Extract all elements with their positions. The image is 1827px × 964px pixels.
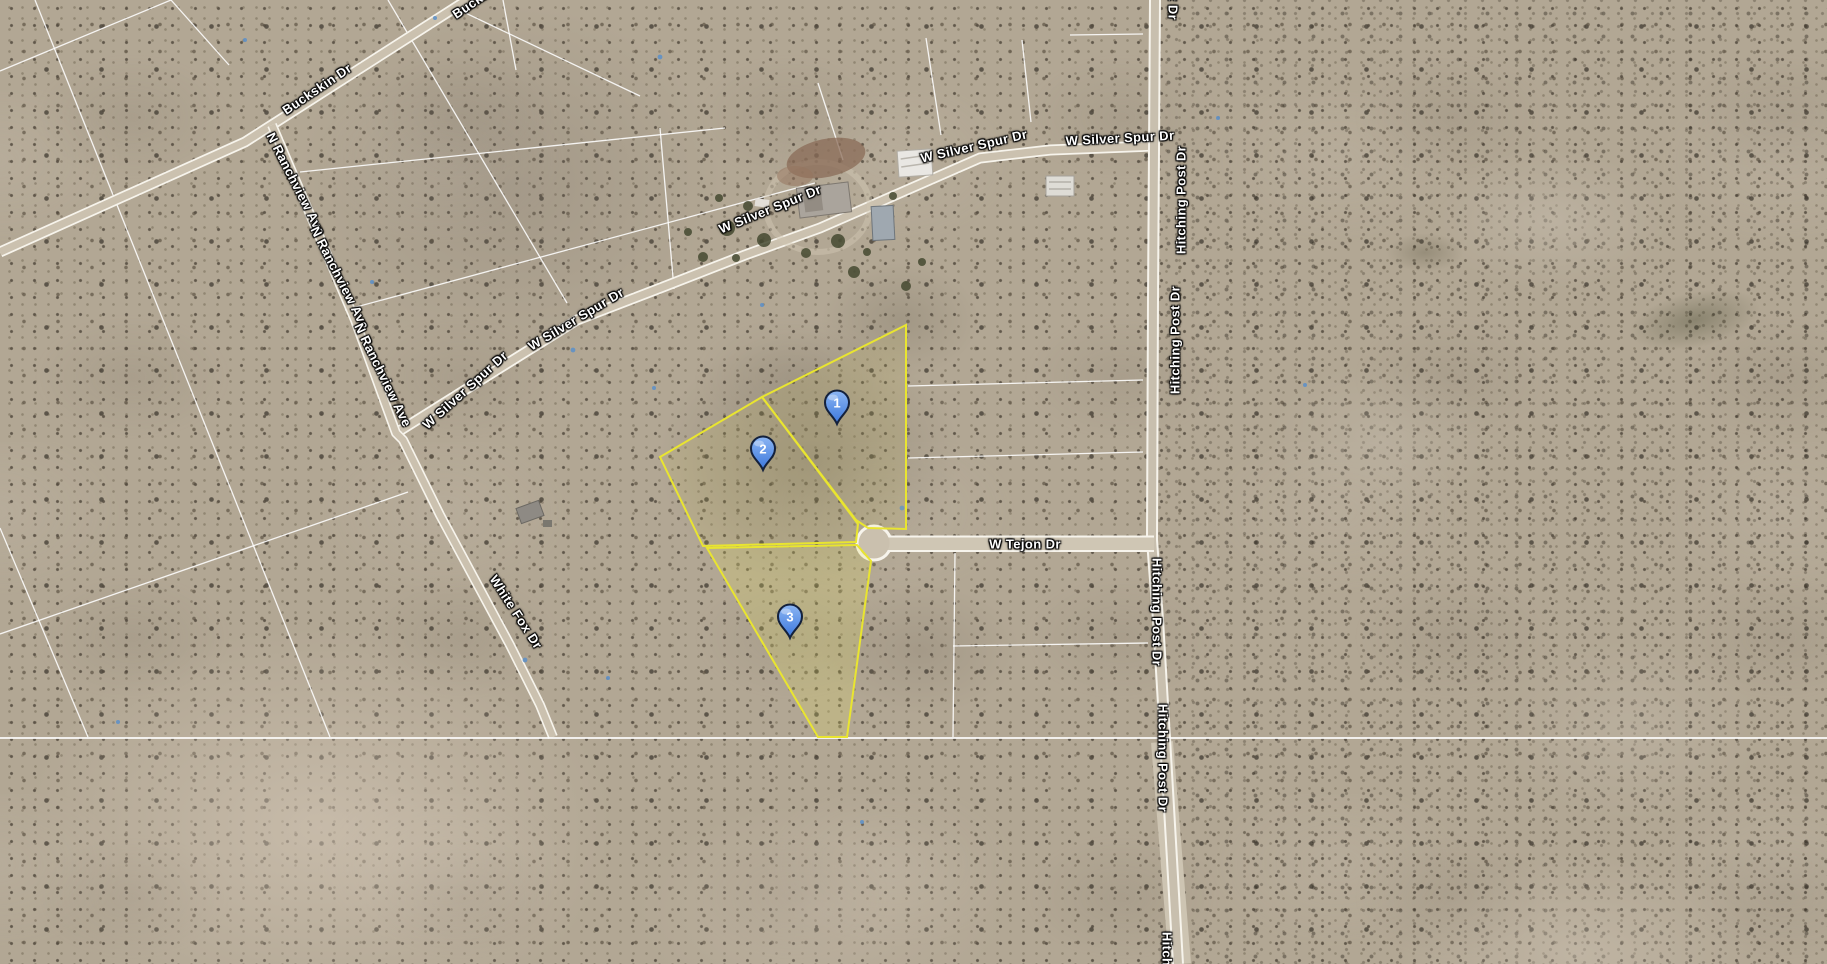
shed-gray: [516, 500, 544, 523]
tint-southwest-light: [0, 520, 730, 964]
trees: [684, 192, 926, 291]
tint-east-dark-blob: [1594, 261, 1796, 379]
tint-fan-terrain-ne: [790, 240, 1010, 400]
tint-east-wash-1: [1380, 120, 1720, 320]
dirt-patch-2: [777, 166, 813, 186]
trailer-white: [755, 198, 770, 208]
tint-east-wash-2: [1220, 330, 1540, 550]
parcel-3: [707, 545, 871, 737]
road-label: W Silver Spur Dr: [717, 182, 824, 237]
road-label: Buckskin Dr: [280, 60, 355, 117]
tint-south-tejon: [780, 560, 1060, 740]
tint-south-mid-light: [560, 760, 1080, 964]
pin-number: 3: [786, 610, 793, 625]
map-pin-3[interactable]: 3: [778, 605, 802, 639]
terrain-speckle: [0, 0, 1827, 964]
road-label: W Silver Spur Dr: [1065, 128, 1175, 149]
outbuilding-white-2: [1046, 176, 1074, 196]
house-main: [796, 182, 851, 218]
map-pins: 123: [751, 391, 849, 639]
parcel-2: [660, 397, 858, 546]
tint-fan-terrain: [600, 280, 1020, 640]
parcel-overlays: [660, 325, 906, 737]
driveway-loop: [766, 162, 870, 252]
tint-southeast-light: [1330, 800, 1827, 964]
road-label: Hitching Post Dr: [1150, 558, 1165, 666]
pin-number: 2: [759, 442, 766, 457]
road-label: White Fox Dr: [487, 572, 546, 651]
parcel-lines-layer: [0, 0, 1148, 737]
map-vector-layer: 123: [0, 0, 1827, 964]
terrain-mottle: [0, 0, 1827, 964]
outbuilding-gray: [871, 205, 895, 240]
road-label: Hitching Post Dr: [1160, 932, 1175, 964]
road-label: N Ranchview Ave: [308, 224, 373, 332]
road-label: Hitching Post Dr: [1174, 146, 1189, 254]
road-label: W Tejon Dr: [989, 537, 1061, 552]
road-labels: Buckskin DrBuckskin DrN Ranchview AveN R…: [0, 0, 1827, 964]
road-label: W Silver Spur Dr: [525, 285, 626, 354]
roads-layer: [0, 0, 1827, 964]
road-label: Hitching Post Dr: [1168, 286, 1183, 394]
map-pin-2[interactable]: 2: [751, 437, 775, 471]
tint-east-dark-blob-2: [1370, 225, 1480, 280]
road-label: Hitching Post Dr: [1156, 704, 1171, 812]
tint-east-wash-3: [1440, 600, 1820, 860]
road-label: N Ranchview Ave: [264, 130, 329, 238]
buildings: [116, 16, 1307, 824]
pin-number: 1: [833, 396, 840, 411]
satellite-map[interactable]: 123 Buckskin DrBuckskin DrN Ranchview Av…: [0, 0, 1827, 964]
road-label: Hitching Post Dr: [1166, 0, 1181, 20]
road-label: W Silver Spur Dr: [419, 348, 510, 432]
outbuilding-white: [897, 149, 933, 177]
cul-de-sac: [859, 528, 890, 559]
road-label: N Ranchview Ave: [351, 321, 414, 430]
tint-north-block: [250, 0, 770, 440]
road-label: W Silver Spur Dr: [919, 126, 1029, 165]
map-pin-1[interactable]: 1: [825, 391, 849, 425]
dirt-patch: [783, 131, 869, 185]
terrain-speckle-east: [1150, 0, 1827, 964]
road-label: Buckskin Dr: [450, 0, 525, 22]
cul-de-sac-edge: [856, 525, 893, 562]
debris-dots: [116, 16, 1307, 824]
shed-small: [543, 520, 552, 527]
parcel-1: [762, 325, 906, 529]
